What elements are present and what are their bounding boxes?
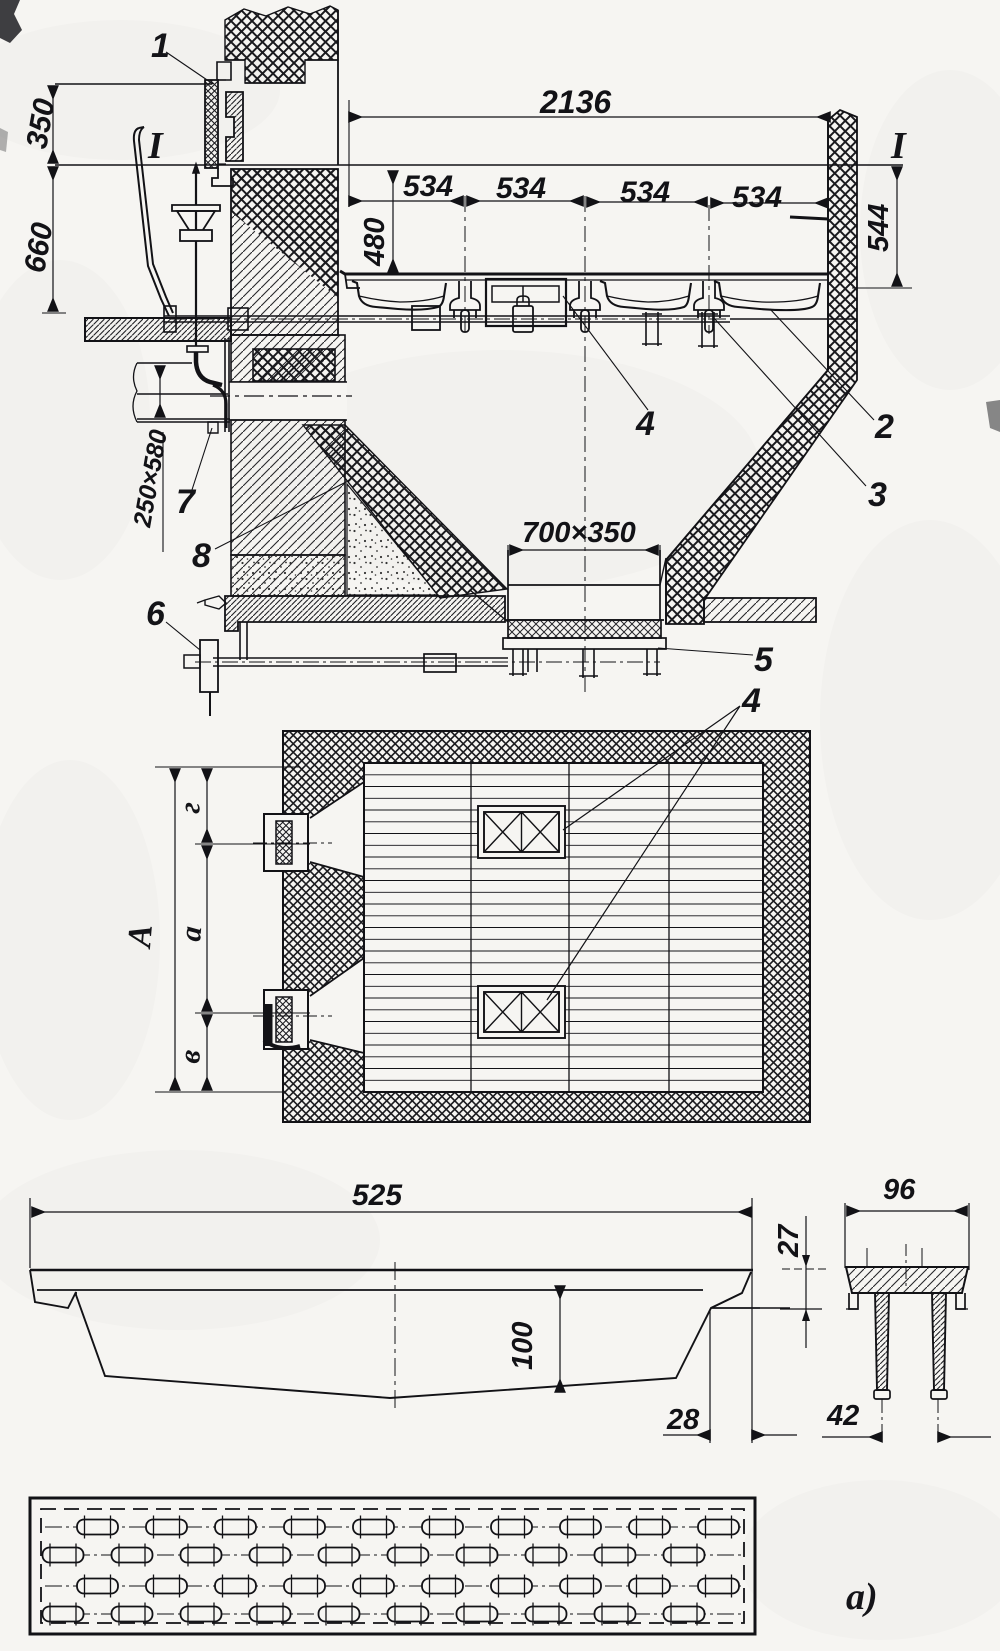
- svg-text:в: в: [173, 1048, 207, 1064]
- svg-text:а): а): [846, 1576, 878, 1618]
- svg-text:700×350: 700×350: [522, 517, 636, 549]
- svg-text:4: 4: [741, 682, 761, 720]
- svg-text:534: 534: [403, 170, 453, 203]
- svg-text:28: 28: [666, 1404, 700, 1436]
- svg-text:544: 544: [863, 204, 895, 252]
- svg-text:42: 42: [826, 1400, 859, 1432]
- svg-text:5: 5: [754, 641, 774, 679]
- svg-text:534: 534: [496, 172, 546, 205]
- svg-text:96: 96: [883, 1174, 916, 1206]
- svg-text:6: 6: [146, 595, 166, 633]
- svg-text:27: 27: [773, 1223, 805, 1258]
- svg-text:1: 1: [151, 27, 170, 65]
- svg-text:I: I: [890, 125, 907, 167]
- svg-text:8: 8: [192, 537, 211, 575]
- svg-text:2136: 2136: [539, 84, 611, 120]
- svg-text:100: 100: [507, 1322, 539, 1370]
- svg-text:I: I: [147, 125, 164, 167]
- svg-text:а: а: [174, 925, 208, 943]
- svg-text:2: 2: [874, 408, 894, 446]
- svg-text:А: А: [121, 923, 160, 951]
- svg-text:г: г: [173, 801, 207, 815]
- svg-text:3: 3: [868, 476, 887, 514]
- svg-text:480: 480: [359, 218, 391, 267]
- svg-text:7: 7: [176, 483, 197, 521]
- svg-text:4: 4: [635, 405, 655, 443]
- svg-text:525: 525: [352, 1179, 403, 1212]
- svg-text:534: 534: [732, 181, 782, 214]
- svg-text:534: 534: [620, 176, 670, 209]
